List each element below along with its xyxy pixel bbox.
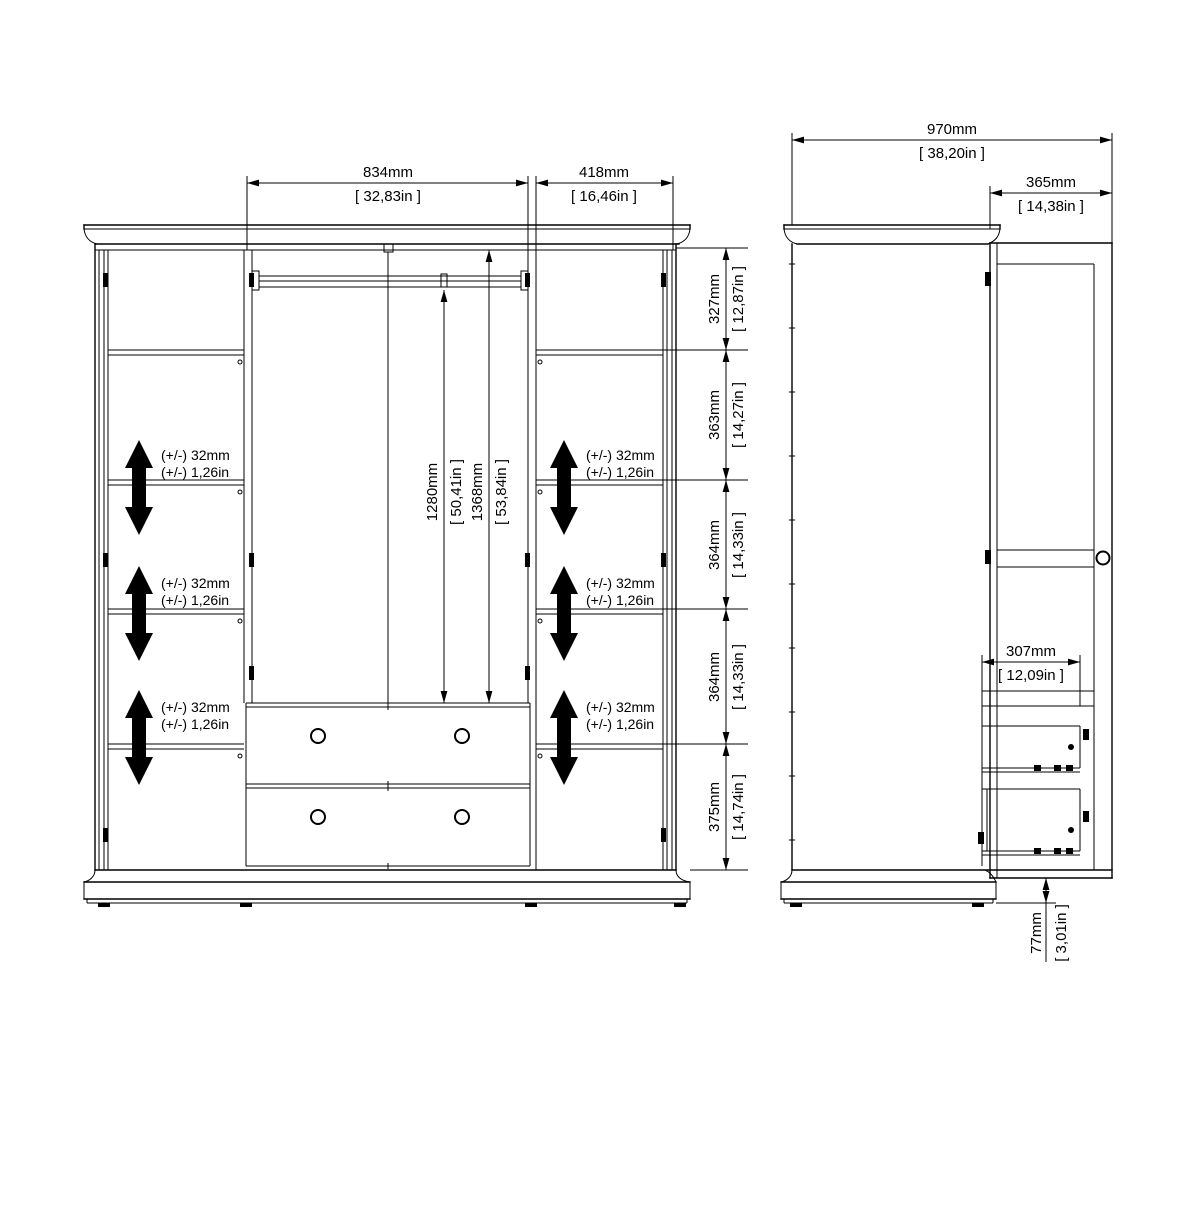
side-dimensions: 970mm [ 38,20in ] 365mm [ 14,38in ] 307m… [792, 121, 1112, 962]
hinge-icon [525, 666, 530, 680]
adjust-label-in: (+/-) 1,26in [586, 716, 654, 732]
adjust-label-mm: (+/-) 32mm [161, 447, 230, 463]
dim-interior1-mm: 1280mm [424, 463, 441, 521]
shelf-pin-icon [238, 360, 242, 364]
top-bracket [384, 244, 393, 252]
runner-bracket-icon [1083, 729, 1089, 740]
dim-seg5-in: [ 14,74in ] [730, 774, 747, 840]
dim-seg2-in: [ 14,27in ] [730, 382, 747, 448]
shelf-pin-icon [238, 754, 242, 758]
drawer-stop-icon [1068, 744, 1074, 750]
shelf-pin-icon [538, 754, 542, 758]
foot-icon [790, 903, 802, 907]
dim-interior1-in: [ 50,41in ] [448, 459, 465, 525]
dim-right-width-in: [ 16,46in ] [571, 188, 637, 205]
wardrobe-technical-drawing: 834mm [ 32,83in ] 418mm [ 16,46in ] 327m… [0, 0, 1200, 1200]
side-base [781, 870, 996, 907]
foot-icon [972, 903, 984, 907]
runner-bracket-icon [1083, 811, 1089, 822]
hinge-icon [525, 273, 530, 287]
adjust-arrow-icon [550, 440, 578, 535]
adjust-label-in: (+/-) 1,26in [161, 716, 229, 732]
dim-door-depth-in: [ 14,38in ] [1018, 198, 1084, 215]
foot-icon [525, 903, 537, 907]
dim-drawer-depth-mm: 307mm [1006, 643, 1056, 660]
front-left-shelves [108, 350, 244, 758]
side-cornice [784, 225, 1000, 244]
hinge-icon [661, 553, 666, 567]
runner-clip-icon [1034, 765, 1041, 771]
dim-seg1-in: [ 12,87in ] [730, 266, 747, 332]
hinge-icon [249, 666, 254, 680]
foot-icon [674, 903, 686, 907]
shelf-pin-icon [538, 490, 542, 494]
shelf-pin-icon [238, 619, 242, 623]
front-base [84, 870, 690, 907]
front-carcass [95, 244, 676, 870]
adjust-label-in: (+/-) 1,26in [161, 592, 229, 608]
side-panel [789, 244, 1112, 870]
runner-clip-icon [1066, 765, 1073, 771]
front-right-shelves [536, 350, 663, 758]
hinge-icon [661, 273, 666, 287]
adjust-label-mm: (+/-) 32mm [161, 575, 230, 591]
drawer-knob-icon [455, 729, 469, 743]
adjust-label-mm: (+/-) 32mm [161, 699, 230, 715]
drawer-knob-icon [455, 810, 469, 824]
dim-seg5-mm: 375mm [706, 782, 723, 832]
adjust-arrow-icon [125, 440, 153, 535]
shelf-pin-icon [238, 490, 242, 494]
adjust-arrow-icon [125, 690, 153, 785]
adjust-label-mm: (+/-) 32mm [586, 699, 655, 715]
hinge-icon [525, 553, 530, 567]
adjust-label-in: (+/-) 1,26in [586, 592, 654, 608]
dim-depth-in: [ 38,20in ] [919, 145, 985, 162]
hinge-icon [103, 553, 108, 567]
dim-interior2-mm: 1368mm [469, 463, 486, 521]
dim-seg2-mm: 363mm [706, 390, 723, 440]
hinge-icon [985, 272, 991, 286]
hinge-icon [249, 553, 254, 567]
adjust-arrow-icon [550, 690, 578, 785]
dim-center-width-mm: 834mm [363, 164, 413, 181]
adjust-label-mm: (+/-) 32mm [586, 575, 655, 591]
dim-seg4-in: [ 14,33in ] [730, 644, 747, 710]
hinge-icon [249, 273, 254, 287]
runner-clip-icon [1066, 848, 1073, 854]
front-cornice [84, 225, 690, 244]
shelf-pin-icon [538, 619, 542, 623]
drawer-knob-icon [311, 729, 325, 743]
runner-clip-icon [1054, 848, 1061, 854]
drawer-knob-icon [311, 810, 325, 824]
runner-block-icon [978, 832, 984, 844]
dim-plinth-in: [ 3,01in ] [1053, 904, 1070, 962]
side-drawers [978, 691, 1094, 866]
dim-right-width-mm: 418mm [579, 164, 629, 181]
hinge-icon [103, 273, 108, 287]
dim-depth-mm: 970mm [927, 121, 977, 138]
hinge-icon [661, 828, 666, 842]
shelf-adjust-arrows: (+/-) 32mm (+/-) 1,26in (+/-) 32mm (+/-)… [125, 440, 655, 785]
front-hinges [103, 273, 666, 842]
foot-icon [240, 903, 252, 907]
shelf-pin-icon [538, 360, 542, 364]
front-dimensions: 834mm [ 32,83in ] 418mm [ 16,46in ] 327m… [247, 164, 748, 870]
front-drawers [246, 700, 530, 869]
side-door [985, 243, 1112, 878]
drawer-stop-icon [1068, 827, 1074, 833]
dim-center-width-in: [ 32,83in ] [355, 188, 421, 205]
dim-drawer-depth-in: [ 12,09in ] [998, 667, 1064, 684]
side-view [781, 225, 1112, 907]
adjust-label-mm: (+/-) 32mm [586, 447, 655, 463]
runner-clip-icon [1034, 848, 1041, 854]
runner-clip-icon [1054, 765, 1061, 771]
dim-seg3-in: [ 14,33in ] [730, 512, 747, 578]
adjust-label-in: (+/-) 1,26in [161, 464, 229, 480]
hinge-icon [103, 828, 108, 842]
dim-door-depth-mm: 365mm [1026, 174, 1076, 191]
dim-interior2-in: [ 53,84in ] [493, 459, 510, 525]
front-view [84, 225, 690, 907]
foot-icon [98, 903, 110, 907]
hinge-icon [985, 550, 991, 564]
adjust-label-in: (+/-) 1,26in [586, 464, 654, 480]
door-knob-icon [1097, 552, 1110, 565]
dim-seg4-mm: 364mm [706, 652, 723, 702]
drawing-canvas: 834mm [ 32,83in ] 418mm [ 16,46in ] 327m… [0, 0, 1200, 1200]
dim-seg1-mm: 327mm [706, 274, 723, 324]
dim-seg3-mm: 364mm [706, 520, 723, 570]
hanging-rail [252, 244, 528, 703]
dim-plinth-mm: 77mm [1028, 912, 1045, 954]
